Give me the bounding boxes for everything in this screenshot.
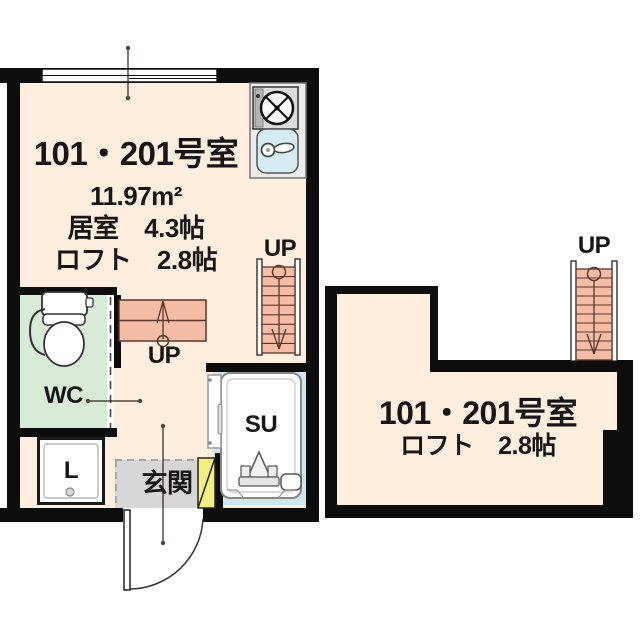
entrance-door-arc (130, 519, 203, 589)
kitchen-stove-icon (253, 87, 298, 129)
loft-room-loft-size: ロフト 2.8帖 (352, 434, 604, 459)
wc-label: WC (20, 384, 107, 408)
main-room-title: 101・201号室 (18, 137, 254, 170)
main-room-loft-size: ロフト 2.8帖 (18, 247, 254, 273)
shower-label: SU (221, 413, 301, 437)
stairs-main-icon (257, 259, 300, 355)
floorplan-drawing (0, 0, 640, 640)
wall-wc-bottom (18, 428, 117, 437)
stairs-loft-up-label: UP (568, 234, 620, 258)
loft-wall-left (325, 286, 337, 518)
wall-shower-top (206, 363, 306, 372)
stairs-main-up-label: UP (254, 237, 306, 261)
main-room-living-size: 居室 4.3帖 (18, 215, 254, 241)
wall-bottom-right (203, 508, 319, 522)
entrance-label: 玄関 (124, 470, 210, 496)
floorplan: 101・201号室 11.97m² 居室 4.3帖 ロフト 2.8帖 UP UP… (0, 0, 640, 640)
wall-bottom-left (0, 508, 123, 522)
loft-wall-right-lower (603, 430, 633, 518)
loft-wall-under-stairs (430, 360, 633, 372)
loft-wall-right-upper (617, 372, 633, 430)
loft-wall-top (325, 286, 438, 294)
kitchen-sink-icon (257, 129, 298, 173)
loft-room-title: 101・201号室 (352, 397, 604, 429)
main-room-area: 11.97m² (18, 183, 254, 209)
wall-right (306, 68, 319, 520)
stairs-lower-up-label: UP (138, 344, 190, 368)
stairs-loft-icon (571, 261, 617, 361)
loft-wall-bottom (325, 505, 633, 518)
shower-door (208, 375, 222, 448)
window (42, 69, 217, 82)
laundry-label: L (37, 459, 105, 483)
stairs-lower-icon (119, 300, 206, 347)
loft-wall-step (430, 286, 438, 366)
kitchen-unit (250, 83, 306, 178)
